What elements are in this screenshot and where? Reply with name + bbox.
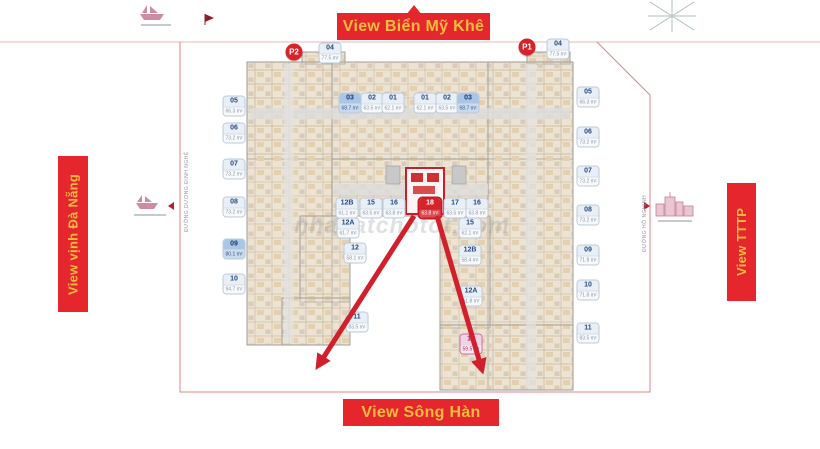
unit-area: 62.1 m² [460, 229, 481, 238]
unit-number: 10 [578, 281, 599, 291]
unit-badge-08[interactable]: 08 73.2 m² [224, 198, 245, 217]
unit-badge-03[interactable]: 03 68.7 m² [458, 94, 479, 113]
unit-number: 12A [338, 219, 359, 229]
unit-badge-12a[interactable]: 12A 61.7 m² [338, 219, 359, 238]
unit-badge-16[interactable]: 16 63.8 m² [384, 199, 405, 218]
unit-badge-12[interactable]: 12 59.5 m² [461, 335, 482, 354]
unit-badge-10[interactable]: 10 94.7 m² [224, 275, 245, 294]
ship-icon-top-left [140, 5, 171, 26]
unit-area: 73.2 m² [578, 177, 599, 186]
unit-number: 03 [340, 94, 361, 104]
unit-number: 12B [337, 199, 358, 209]
street-label-right: ĐƯỜNG HỒ NGHINH [641, 195, 648, 252]
unit-area: 62.1 m² [383, 104, 404, 113]
unit-badge-01[interactable]: 01 62.1 m² [415, 94, 436, 113]
unit-badge-11[interactable]: 11 83.5 m² [578, 324, 599, 343]
corridor-right-wing [526, 64, 536, 388]
unit-area: 63.5 m² [361, 209, 382, 218]
unit-number: 02 [437, 94, 458, 104]
skyline-icon-right [656, 192, 693, 222]
unit-area: 58.1 m² [345, 254, 366, 263]
unit-number: 09 [224, 240, 245, 250]
unit-area: 63.8 m² [467, 209, 488, 218]
unit-area: 73.2 m² [224, 208, 245, 217]
unit-area: 58.4 m² [460, 256, 481, 265]
unit-badge-06[interactable]: 06 73.2 m² [578, 128, 599, 147]
unit-number: 11 [347, 313, 368, 323]
unit-badge-15[interactable]: 15 63.5 m² [361, 199, 382, 218]
unit-area: 80.1 m² [224, 250, 245, 259]
tower-marker-p2: P2 [286, 44, 303, 61]
unit-badge-12b[interactable]: 12B 61.1 m² [337, 199, 358, 218]
unit-number: 18 [420, 199, 441, 209]
pointer-triangle-left [168, 202, 174, 210]
unit-badge-12[interactable]: 12 58.1 m² [345, 244, 366, 263]
unit-area: 94.7 m² [224, 285, 245, 294]
unit-area: 77.5 m² [548, 50, 569, 59]
ship-icon-left [134, 195, 166, 216]
unit-number: 09 [578, 246, 599, 256]
unit-badge-01[interactable]: 01 62.1 m² [383, 94, 404, 113]
unit-number: 03 [458, 94, 479, 104]
unit-area: 61.8 m² [461, 297, 482, 306]
unit-area: 83.5 m² [347, 323, 368, 332]
unit-number: 11 [578, 324, 599, 334]
unit-number: 05 [224, 97, 245, 107]
unit-number: 12 [461, 335, 482, 345]
unit-badge-12b[interactable]: 12B 58.4 m² [460, 246, 481, 265]
unit-badge-04[interactable]: 04 77.5 m² [548, 40, 569, 59]
unit-badge-15[interactable]: 15 62.1 m² [460, 219, 481, 238]
unit-number: 08 [224, 198, 245, 208]
unit-number: 06 [224, 124, 245, 134]
unit-badge-03[interactable]: 03 68.7 m² [340, 94, 361, 113]
street-label-left: ĐƯỜNG DƯƠNG ĐÌNH NGHỆ [182, 151, 190, 232]
unit-area: 77.5 m² [320, 54, 341, 63]
unit-badge-05[interactable]: 05 66.3 m² [578, 88, 599, 107]
view-banner-top: View Biển Mỹ Khê [337, 13, 490, 40]
stair-core-right [452, 166, 466, 184]
unit-badge-10[interactable]: 10 71.8 m² [578, 281, 599, 300]
unit-badge-06[interactable]: 06 73.2 m² [224, 124, 245, 143]
unit-badge-12a[interactable]: 12A 61.8 m² [461, 287, 482, 306]
corridor-top [250, 108, 570, 119]
unit-number: 12 [345, 244, 366, 254]
unit-number: 12B [460, 246, 481, 256]
stair-core-left [386, 166, 400, 184]
view-banner-left: View vịnh Đà Nẵng [58, 156, 88, 312]
unit-area: 73.2 m² [224, 170, 245, 179]
unit-number: 04 [320, 44, 341, 54]
unit-number: 06 [578, 128, 599, 138]
unit-area: 59.5 m² [461, 345, 482, 354]
unit-area: 73.2 m² [224, 134, 245, 143]
unit-badge-02[interactable]: 02 63.5 m² [362, 94, 383, 113]
unit-area: 68.7 m² [340, 104, 361, 113]
tower-marker-p1: P1 [519, 39, 536, 56]
unit-badge-04[interactable]: 04 77.5 m² [320, 44, 341, 63]
unit-area: 63.5 m² [445, 209, 466, 218]
unit-number: 05 [578, 88, 599, 98]
unit-number: 07 [224, 160, 245, 170]
view-banner-bottom: View Sông Hàn [343, 399, 499, 426]
unit-area: 66.3 m² [224, 107, 245, 116]
unit-number: 12A [461, 287, 482, 297]
unit-number: 01 [415, 94, 436, 104]
unit-badge-09[interactable]: 09 71.8 m² [578, 246, 599, 265]
unit-number: 16 [467, 199, 488, 209]
unit-number: 17 [445, 199, 466, 209]
floor-plan: ĐƯỜNG DƯƠNG ĐÌNH NGHỆ ĐƯỜNG HỒ NGHINH [0, 0, 820, 449]
floorplan-page: ĐƯỜNG DƯƠNG ĐÌNH NGHỆ ĐƯỜNG HỒ NGHINH nh… [0, 0, 820, 449]
corridor-left-wing [284, 64, 294, 343]
unit-badge-07[interactable]: 07 73.2 m² [578, 167, 599, 186]
unit-area: 63.5 m² [362, 104, 383, 113]
unit-area: 68.7 m² [458, 104, 479, 113]
compass-icon [648, 0, 696, 32]
unit-area: 71.8 m² [578, 256, 599, 265]
unit-number: 10 [224, 275, 245, 285]
unit-area: 63.8 m² [420, 209, 441, 218]
unit-badge-09[interactable]: 09 80.1 m² [224, 240, 245, 259]
unit-badge-07[interactable]: 07 73.2 m² [224, 160, 245, 179]
building-blocks [247, 52, 573, 390]
unit-number: 08 [578, 206, 599, 216]
unit-badge-11[interactable]: 11 83.5 m² [347, 313, 368, 332]
unit-area: 61.1 m² [337, 209, 358, 218]
unit-area: 61.7 m² [338, 229, 359, 238]
unit-badge-17[interactable]: 17 63.5 m² [445, 199, 466, 218]
unit-number: 15 [361, 199, 382, 209]
unit-number: 15 [460, 219, 481, 229]
view-banner-right: View TTTP [727, 183, 756, 301]
unit-number: 16 [384, 199, 405, 209]
unit-badge-05[interactable]: 05 66.3 m² [224, 97, 245, 116]
unit-area: 73.2 m² [578, 216, 599, 225]
unit-area: 63.8 m² [384, 209, 405, 218]
unit-area: 73.2 m² [578, 138, 599, 147]
unit-badge-18[interactable]: 18 63.8 m² [420, 199, 441, 218]
flag-marker-top-left [205, 14, 214, 25]
unit-badge-16[interactable]: 16 63.8 m² [467, 199, 488, 218]
unit-area: 66.3 m² [578, 98, 599, 107]
unit-number: 04 [548, 40, 569, 50]
unit-number: 07 [578, 167, 599, 177]
unit-area: 83.5 m² [578, 334, 599, 343]
unit-number: 02 [362, 94, 383, 104]
unit-area: 63.5 m² [437, 104, 458, 113]
unit-badge-08[interactable]: 08 73.2 m² [578, 206, 599, 225]
unit-number: 01 [383, 94, 404, 104]
unit-area: 71.8 m² [578, 291, 599, 300]
unit-badge-02[interactable]: 02 63.5 m² [437, 94, 458, 113]
unit-area: 62.1 m² [415, 104, 436, 113]
